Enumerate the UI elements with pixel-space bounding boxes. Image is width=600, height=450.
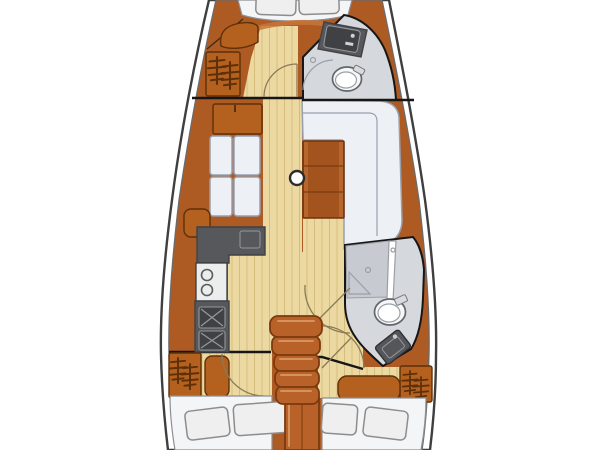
starboard-berth-pillow	[321, 403, 358, 435]
mast-post	[290, 171, 304, 185]
starboard-cabin-bench	[338, 376, 400, 401]
v-berth-pillow-left	[256, 0, 297, 16]
port-cabin-bench	[205, 356, 229, 397]
saloon-table	[303, 141, 344, 218]
step-tread	[275, 370, 319, 387]
starboard-berth-pillow	[362, 407, 408, 441]
forward-head-toilet-bowl	[336, 72, 357, 88]
v-berth-pillow-right	[299, 0, 340, 15]
step-tread	[274, 354, 319, 371]
port-aft-hanging-locker	[169, 353, 201, 398]
step-tread	[276, 386, 319, 404]
galley-sink-unit	[196, 263, 227, 301]
aft-head-toilet-bowl	[378, 304, 400, 322]
port-berth-pillow	[184, 407, 230, 441]
step-tread	[272, 336, 320, 355]
yacht-floor-plan	[0, 0, 600, 450]
floor-plan-image	[0, 0, 600, 450]
aft-head-shower-pan	[346, 241, 389, 298]
galley-stove	[195, 301, 229, 352]
step-tread	[270, 316, 322, 337]
saloon-sideboard	[213, 104, 262, 134]
port-berth-pillow	[233, 401, 291, 436]
